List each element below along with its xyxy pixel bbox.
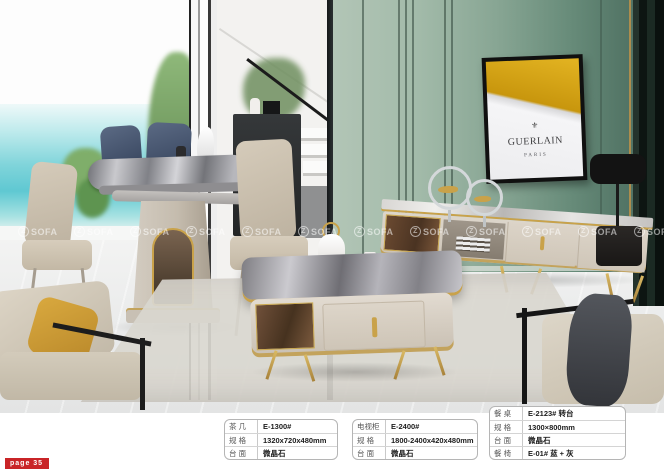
watermark: ZSOFA bbox=[298, 226, 338, 237]
page-number-badge: page 35 bbox=[5, 458, 49, 469]
watermark: ZSOFA bbox=[410, 226, 450, 237]
watermark-logo-icon: Z bbox=[354, 226, 365, 237]
spec-label: 台 面 bbox=[353, 447, 386, 459]
watermark-text: SOFA bbox=[367, 227, 394, 237]
watermark: ZSOFA bbox=[578, 226, 618, 237]
poster-artwork: ⚜ GUERLAIN PARIS bbox=[486, 58, 583, 179]
drawer-handle bbox=[372, 317, 378, 337]
spec-label: 餐 桌 bbox=[490, 407, 523, 420]
spec-value: E-2123# 转台 bbox=[523, 408, 573, 419]
sculpture-stand bbox=[448, 210, 451, 222]
watermark-logo-icon: Z bbox=[18, 226, 29, 237]
poster-city-text: PARIS bbox=[489, 151, 582, 160]
spec-row: 电视柜 E-2400# bbox=[353, 420, 477, 433]
spec-row: 规 格 1800-2400x420x480mm bbox=[353, 433, 477, 446]
spec-box-tv-cabinet: 电视柜 E-2400# 规 格 1800-2400x420x480mm 台 面 … bbox=[352, 419, 478, 460]
spec-label: 规 格 bbox=[225, 434, 258, 446]
spec-label: 规 格 bbox=[490, 421, 523, 433]
watermark: ZSOFA bbox=[242, 226, 282, 237]
coffee-table-drawer bbox=[322, 300, 426, 351]
spec-label: 餐 椅 bbox=[490, 447, 523, 459]
metal-frame-post bbox=[140, 338, 145, 410]
spec-label: 电视柜 bbox=[353, 420, 386, 433]
watermark-text: SOFA bbox=[423, 227, 450, 237]
gray-throw-blanket bbox=[564, 292, 634, 408]
bird-figurine bbox=[474, 196, 491, 202]
watermark-text: SOFA bbox=[535, 227, 562, 237]
watermark: ZSOFA bbox=[186, 226, 226, 237]
watermark-logo-icon: Z bbox=[522, 226, 533, 237]
watermark-logo-icon: Z bbox=[186, 226, 197, 237]
poster-brand-text: GUERLAIN bbox=[489, 134, 582, 149]
spec-value: 微晶石 bbox=[523, 435, 551, 446]
gold-leg bbox=[393, 350, 405, 379]
armchair-right bbox=[516, 292, 664, 413]
spec-value: 1320x720x480mm bbox=[258, 436, 326, 445]
spec-value: E-01# 蓝 + 灰 bbox=[523, 448, 574, 459]
watermark-logo-icon: Z bbox=[410, 226, 421, 237]
floor-lamp-shade bbox=[590, 154, 646, 184]
watermark-text: SOFA bbox=[311, 227, 338, 237]
watermark-text: SOFA bbox=[255, 227, 282, 237]
spec-row: 餐 桌 E-2123# 转台 bbox=[490, 407, 625, 420]
showroom-photo: ⚜ GUERLAIN PARIS bbox=[0, 0, 664, 413]
floor-lamp-stem bbox=[616, 184, 619, 228]
spec-row: 茶 几 E-1300# bbox=[225, 420, 337, 433]
watermark-row: ZSOFAZSOFAZSOFAZSOFAZSOFAZSOFAZSOFAZSOFA… bbox=[0, 226, 664, 242]
watermark: ZSOFA bbox=[74, 226, 114, 237]
spec-row: 规 格 1300×800mm bbox=[490, 420, 625, 433]
spec-label: 规 格 bbox=[353, 434, 386, 446]
armchair-seat-cushion bbox=[0, 352, 142, 400]
spec-box-coffee-table: 茶 几 E-1300# 规 格 1320x720x480mm 台 面 微晶石 bbox=[224, 419, 338, 460]
watermark: ZSOFA bbox=[354, 226, 394, 237]
spec-label: 台 面 bbox=[225, 447, 258, 459]
spec-box-dining-table: 餐 桌 E-2123# 转台 规 格 1300×800mm 台 面 微晶石 餐 … bbox=[489, 406, 626, 460]
watermark: ZSOFA bbox=[634, 226, 664, 237]
watermark: ZSOFA bbox=[18, 226, 58, 237]
coffee-table bbox=[242, 248, 468, 378]
dining-chair-seat bbox=[22, 240, 92, 270]
watermark-text: SOFA bbox=[143, 227, 170, 237]
stair-step bbox=[297, 144, 327, 158]
spec-label: 台 面 bbox=[490, 434, 523, 446]
stair-step bbox=[303, 161, 327, 176]
coffee-table-glass-cabinet bbox=[255, 302, 315, 350]
watermark-logo-icon: Z bbox=[130, 226, 141, 237]
catalog-page: ⚜ GUERLAIN PARIS bbox=[0, 0, 664, 475]
spec-row: 餐 椅 E-01# 蓝 + 灰 bbox=[490, 446, 625, 459]
spec-value: 1300×800mm bbox=[523, 423, 575, 432]
watermark-text: SOFA bbox=[591, 227, 618, 237]
watermark-logo-icon: Z bbox=[242, 226, 253, 237]
spec-value: 微晶石 bbox=[386, 448, 414, 459]
watermark-text: SOFA bbox=[87, 227, 114, 237]
spec-value: E-2400# bbox=[386, 422, 419, 431]
watermark: ZSOFA bbox=[522, 226, 562, 237]
metal-frame-post bbox=[522, 308, 527, 404]
spec-value: 1800-2400x420x480mm bbox=[386, 436, 474, 445]
watermark-text: SOFA bbox=[647, 227, 664, 237]
guerlain-poster: ⚜ GUERLAIN PARIS bbox=[482, 54, 588, 184]
spec-row: 台 面 微晶石 bbox=[353, 446, 477, 459]
watermark-logo-icon: Z bbox=[298, 226, 309, 237]
decor-box bbox=[263, 101, 280, 115]
watermark-text: SOFA bbox=[479, 227, 506, 237]
watermark: ZSOFA bbox=[466, 226, 506, 237]
spec-value: E-1300# bbox=[258, 422, 291, 431]
watermark-logo-icon: Z bbox=[466, 226, 477, 237]
watermark: ZSOFA bbox=[130, 226, 170, 237]
spec-row: 台 面 微晶石 bbox=[490, 433, 625, 446]
gold-leg bbox=[304, 354, 316, 382]
coffee-table-body bbox=[250, 292, 454, 357]
watermark-logo-icon: Z bbox=[74, 226, 85, 237]
guerlain-emblem-icon: ⚜ bbox=[488, 120, 581, 133]
watermark-text: SOFA bbox=[31, 227, 58, 237]
watermark-logo-icon: Z bbox=[634, 226, 645, 237]
vase bbox=[250, 98, 260, 115]
watermark-logo-icon: Z bbox=[578, 226, 589, 237]
spec-row: 台 面 微晶石 bbox=[225, 446, 337, 459]
bird-figurine bbox=[438, 186, 458, 193]
watermark-text: SOFA bbox=[199, 227, 226, 237]
armchair-left bbox=[0, 280, 154, 413]
spec-row: 规 格 1320x720x480mm bbox=[225, 433, 337, 446]
spec-value: 微晶石 bbox=[258, 448, 286, 459]
spec-label: 茶 几 bbox=[225, 420, 258, 433]
